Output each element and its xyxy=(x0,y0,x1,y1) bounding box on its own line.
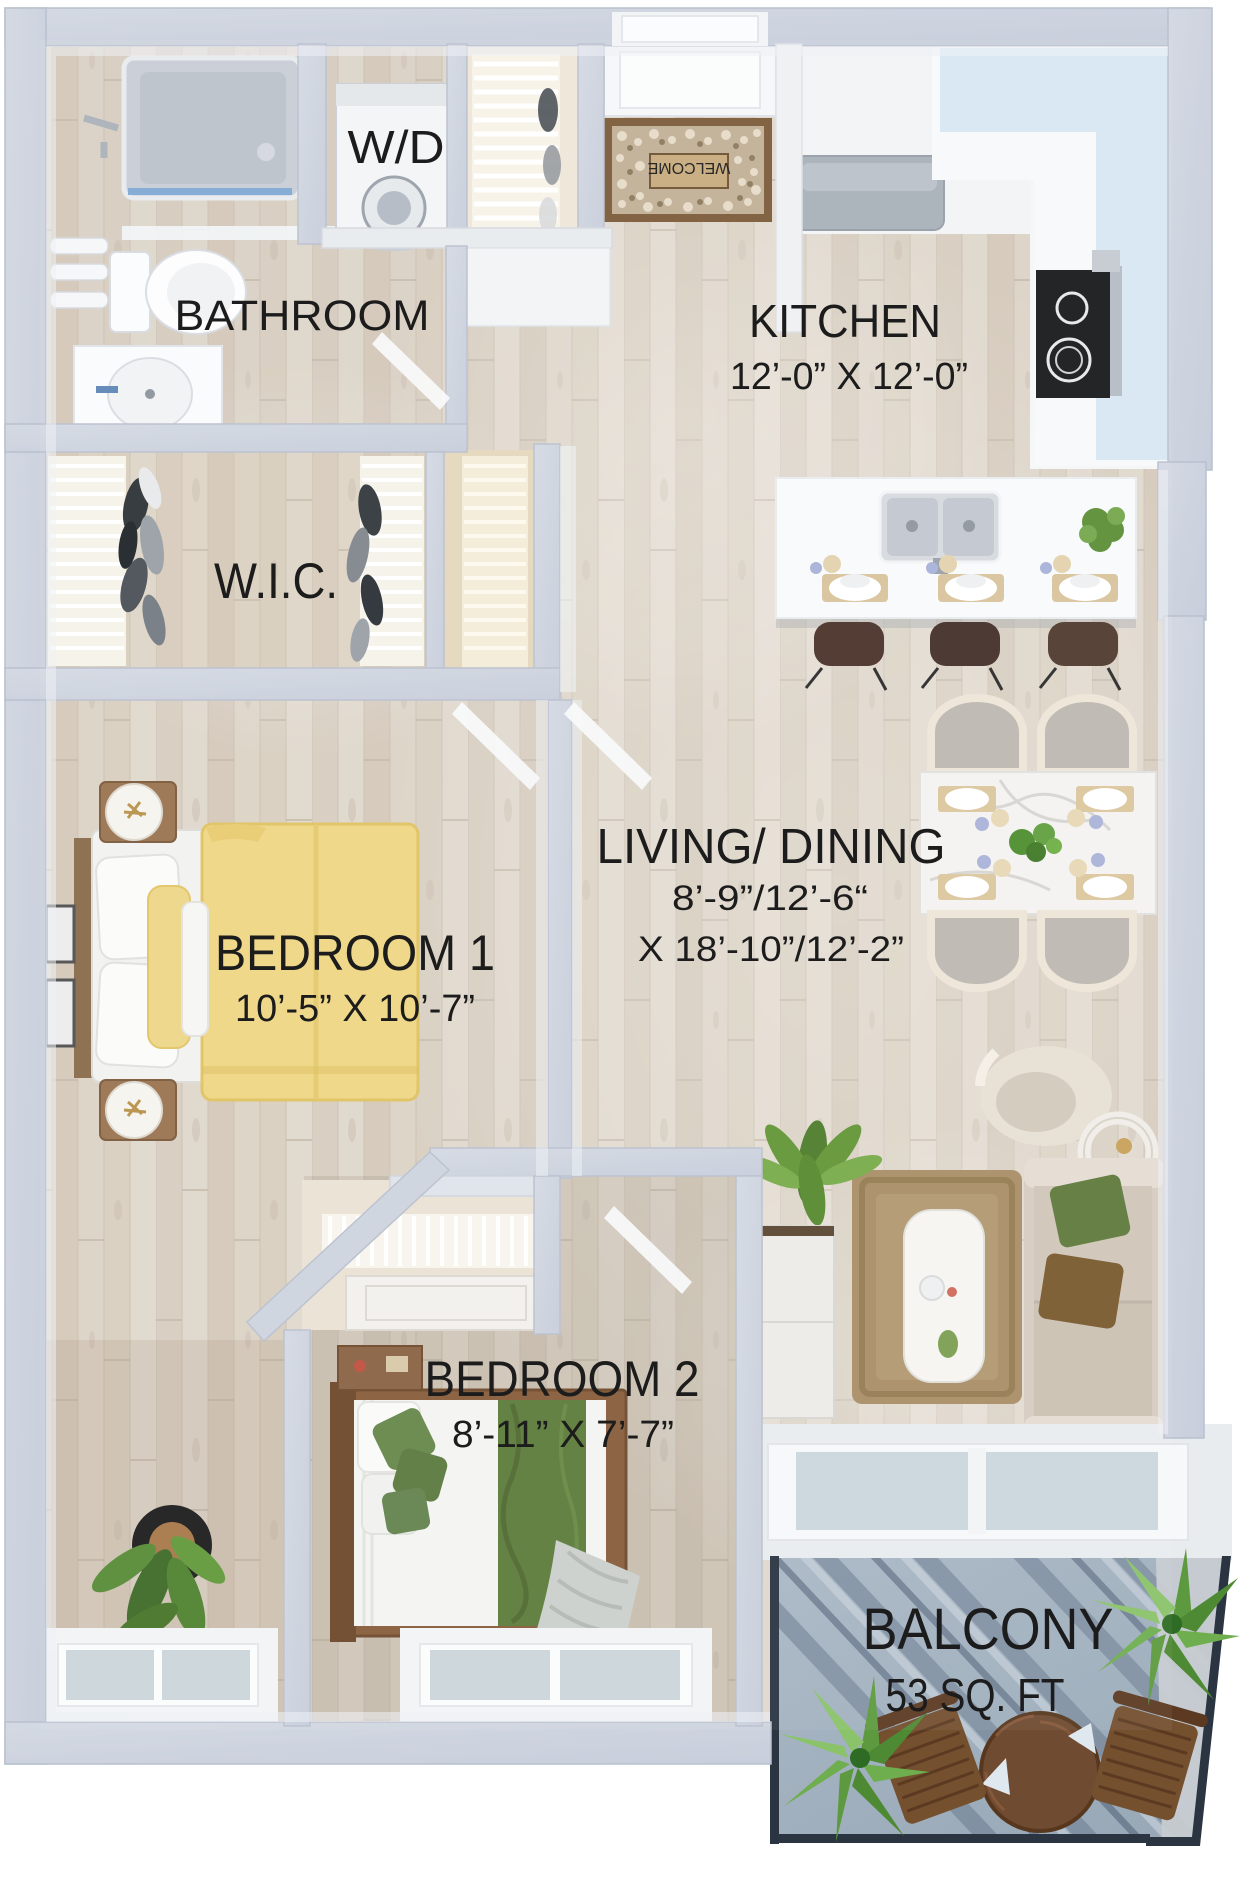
svg-text:10’-5” X 10’-7”: 10’-5” X 10’-7” xyxy=(235,988,475,1030)
svg-text:BALCONY: BALCONY xyxy=(863,1597,1114,1662)
svg-text:8’-9”/12’-6“: 8’-9”/12’-6“ xyxy=(672,879,868,918)
svg-text:BEDROOM 1: BEDROOM 1 xyxy=(215,925,495,981)
svg-text:12’-0” X 12’-0”: 12’-0” X 12’-0” xyxy=(730,356,968,398)
svg-text:53 SQ. FT: 53 SQ. FT xyxy=(886,1669,1065,1721)
svg-text:BATHROOM: BATHROOM xyxy=(175,292,430,340)
svg-text:KITCHEN: KITCHEN xyxy=(749,295,941,347)
svg-text:X 18’-10”/12’-2”: X 18’-10”/12’-2” xyxy=(638,930,904,969)
svg-text:W.I.C.: W.I.C. xyxy=(214,553,338,609)
svg-text:LIVING/ DINING: LIVING/ DINING xyxy=(597,820,946,874)
svg-text:W/D: W/D xyxy=(348,121,445,173)
svg-text:8’-11” X 7’-7”: 8’-11” X 7’-7” xyxy=(452,1414,674,1456)
svg-text:BEDROOM 2: BEDROOM 2 xyxy=(425,1351,700,1407)
